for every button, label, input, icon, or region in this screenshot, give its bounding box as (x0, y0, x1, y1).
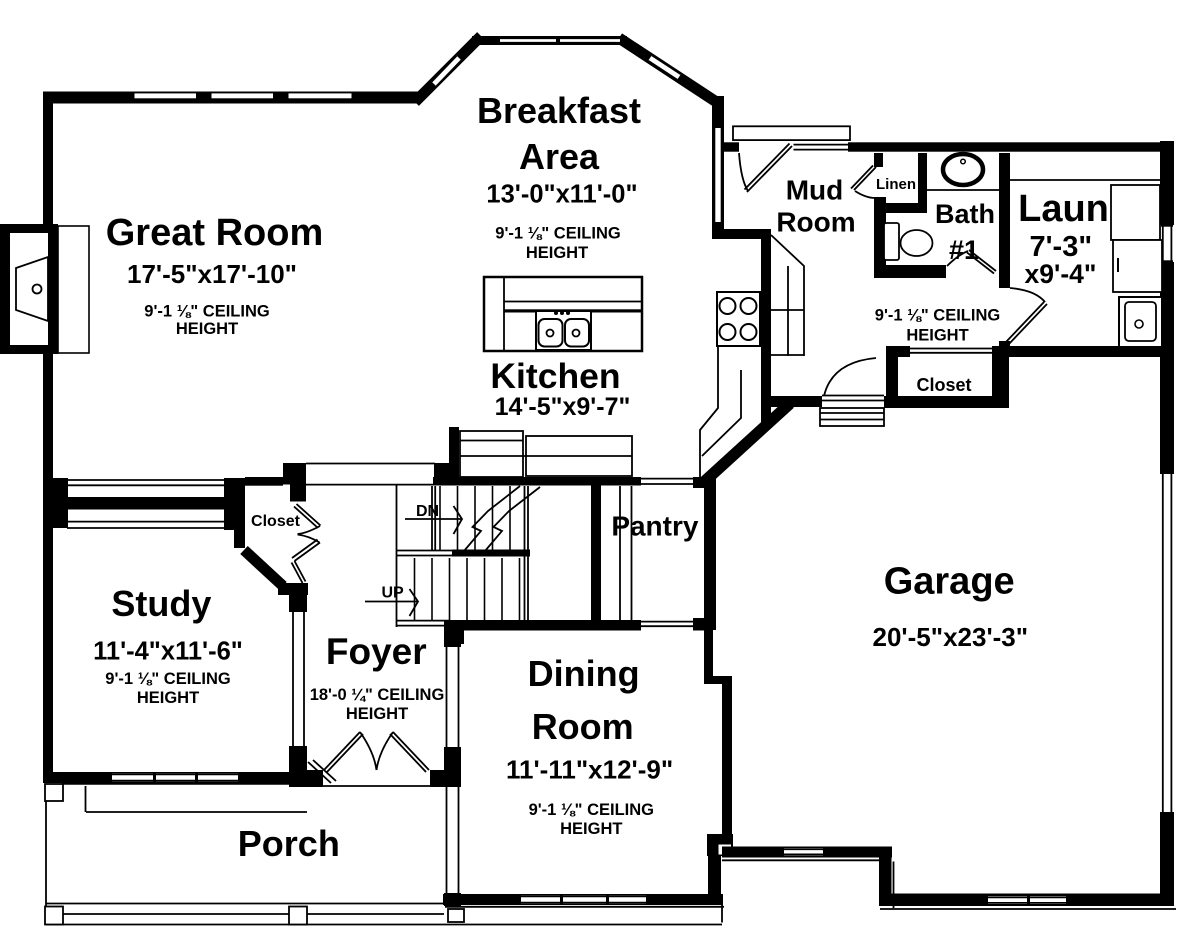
svg-text:Garage: Garage (884, 561, 1015, 603)
svg-text:Porch: Porch (238, 823, 340, 864)
svg-text:Closet: Closet (251, 513, 301, 530)
svg-text:Breakfast: Breakfast (477, 90, 641, 131)
svg-text:7'-3": 7'-3" (1030, 231, 1093, 263)
svg-text:11'-4"x11'-6": 11'-4"x11'-6" (93, 637, 243, 665)
svg-text:9'-1 ⅛" CEILING: 9'-1 ⅛" CEILING (105, 670, 230, 688)
svg-text:11'-11"x12'-9": 11'-11"x12'-9" (506, 755, 673, 785)
svg-text:Bath: Bath (935, 199, 995, 229)
svg-text:Mud: Mud (786, 175, 844, 206)
svg-text:HEIGHT: HEIGHT (906, 327, 968, 345)
svg-text:Room: Room (776, 207, 855, 238)
svg-text:UP: UP (381, 585, 404, 602)
svg-text:#1: #1 (949, 235, 979, 265)
svg-text:Room: Room (532, 706, 634, 747)
svg-text:Great Room: Great Room (106, 212, 323, 254)
svg-text:x9'-4": x9'-4" (1025, 259, 1097, 289)
svg-text:Kitchen: Kitchen (490, 356, 620, 396)
svg-text:9'-1 ⅛" CEILING: 9'-1 ⅛" CEILING (144, 303, 269, 321)
svg-text:17'-5"x17'-10": 17'-5"x17'-10" (127, 259, 297, 289)
svg-text:HEIGHT: HEIGHT (137, 689, 199, 707)
svg-text:DN: DN (416, 503, 439, 520)
svg-text:13'-0"x11'-0": 13'-0"x11'-0" (486, 181, 637, 209)
svg-text:Closet: Closet (916, 375, 971, 395)
svg-text:Study: Study (111, 583, 211, 624)
svg-text:Linen: Linen (876, 176, 916, 193)
svg-text:HEIGHT: HEIGHT (346, 705, 408, 723)
svg-text:Dining: Dining (528, 653, 640, 694)
svg-text:HEIGHT: HEIGHT (176, 320, 238, 338)
svg-text:18'-0 ¼" CEILING: 18'-0 ¼" CEILING (310, 686, 445, 704)
svg-text:9'-1 ⅛" CEILING: 9'-1 ⅛" CEILING (495, 225, 620, 243)
svg-text:9'-1 ⅛" CEILING: 9'-1 ⅛" CEILING (529, 801, 654, 819)
svg-text:Laun: Laun (1018, 188, 1109, 230)
svg-text:Pantry: Pantry (611, 511, 699, 542)
svg-text:HEIGHT: HEIGHT (560, 820, 622, 838)
svg-text:9'-1 ⅛" CEILING: 9'-1 ⅛" CEILING (875, 307, 1000, 325)
svg-text:Area: Area (519, 136, 600, 177)
svg-text:HEIGHT: HEIGHT (526, 244, 588, 262)
svg-text:14'-5"x9'-7": 14'-5"x9'-7" (495, 393, 631, 421)
svg-text:20'-5"x23'-3": 20'-5"x23'-3" (873, 622, 1029, 652)
svg-text:Foyer: Foyer (326, 631, 427, 672)
